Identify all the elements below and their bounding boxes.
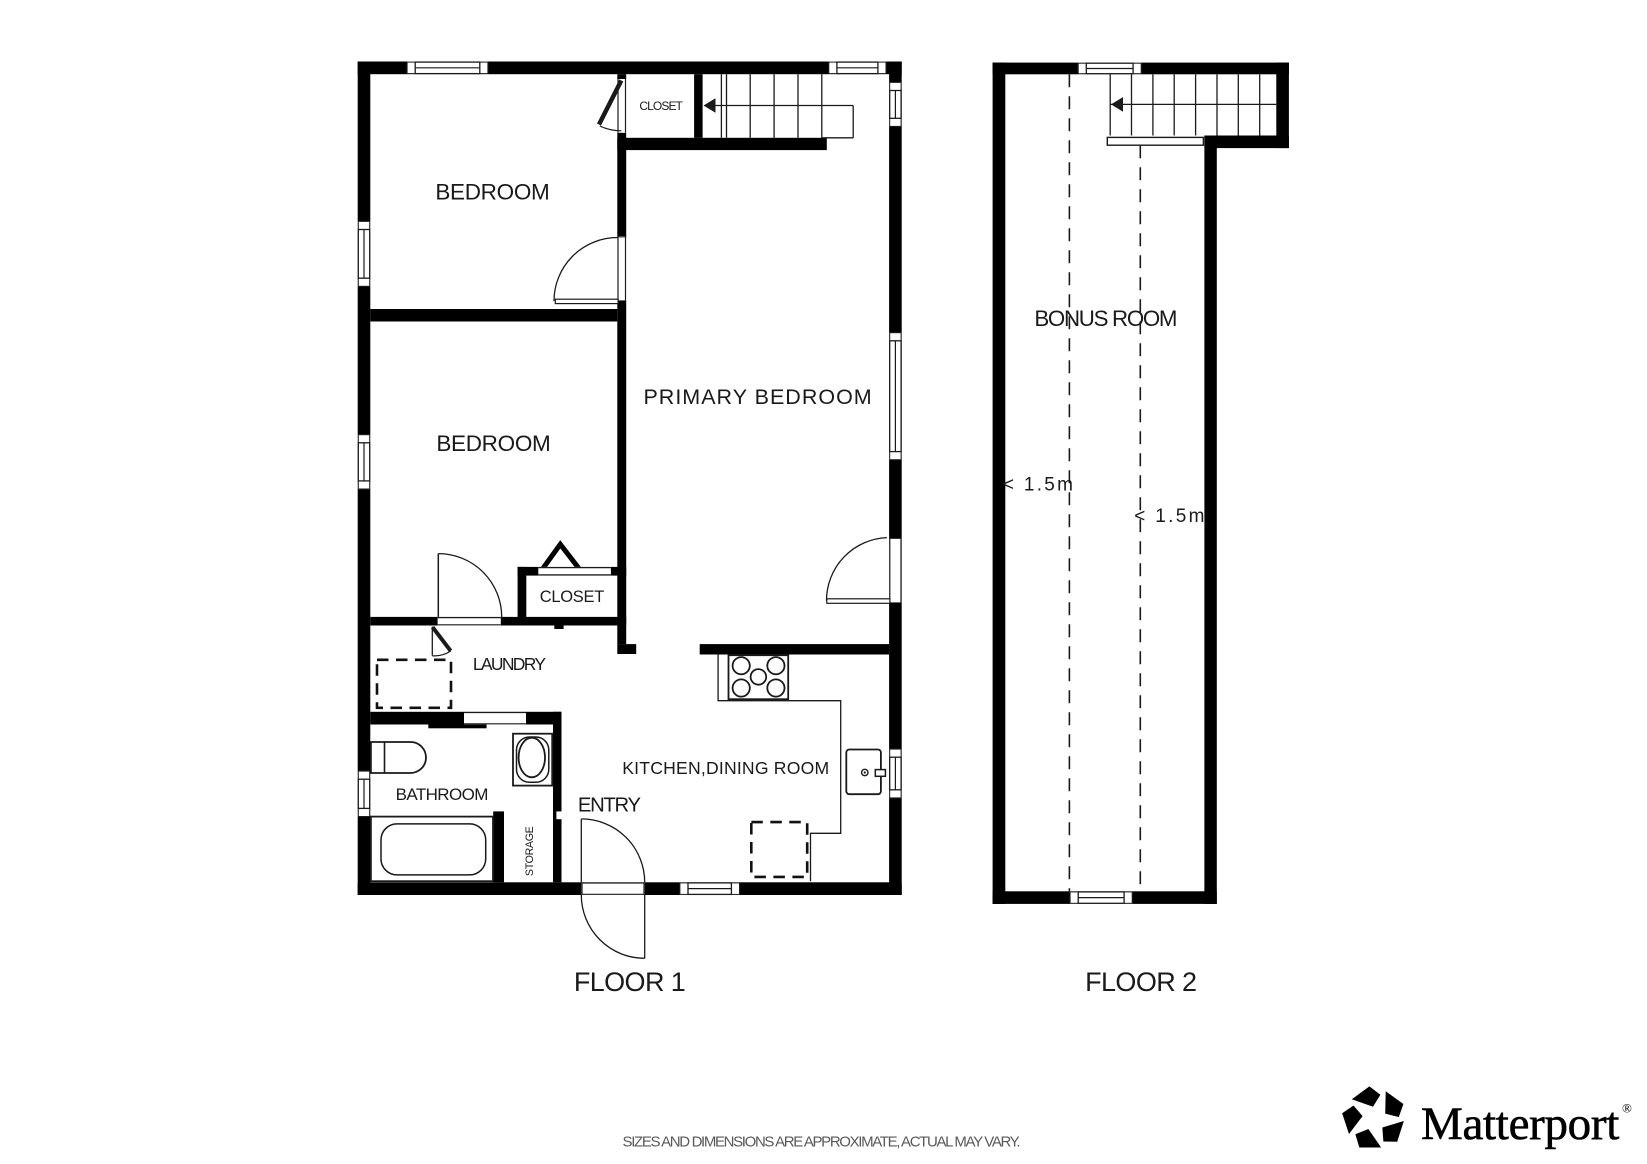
svg-text:ENTRY: ENTRY — [578, 795, 642, 817]
svg-text:PRIMARY BEDROOM: PRIMARY BEDROOM — [643, 385, 872, 409]
svg-text:SIZES AND DIMENSIONS ARE APPRO: SIZES AND DIMENSIONS ARE APPROXIMATE, AC… — [623, 1133, 1020, 1150]
svg-text:Matterport: Matterport — [1421, 1098, 1619, 1150]
svg-text:KITCHEN,DINING ROOM: KITCHEN,DINING ROOM — [622, 758, 829, 778]
svg-text:BATHROOM: BATHROOM — [396, 785, 488, 804]
svg-text:BONUS ROOM: BONUS ROOM — [1034, 306, 1176, 331]
svg-text:< 1.5m: < 1.5m — [1134, 506, 1206, 527]
svg-text:FLOOR 2: FLOOR 2 — [1085, 967, 1196, 997]
svg-text:< 1.5m: < 1.5m — [1003, 475, 1075, 496]
svg-text:FLOOR 1: FLOOR 1 — [574, 967, 685, 997]
svg-text:STORAGE: STORAGE — [524, 826, 536, 876]
svg-text:LAUNDRY: LAUNDRY — [473, 654, 546, 674]
svg-text:CLOSET: CLOSET — [540, 588, 604, 606]
svg-text:CLOSET: CLOSET — [639, 99, 683, 113]
svg-text:®: ® — [1622, 1101, 1632, 1116]
svg-text:BEDROOM: BEDROOM — [436, 431, 550, 456]
svg-text:BEDROOM: BEDROOM — [435, 179, 549, 204]
